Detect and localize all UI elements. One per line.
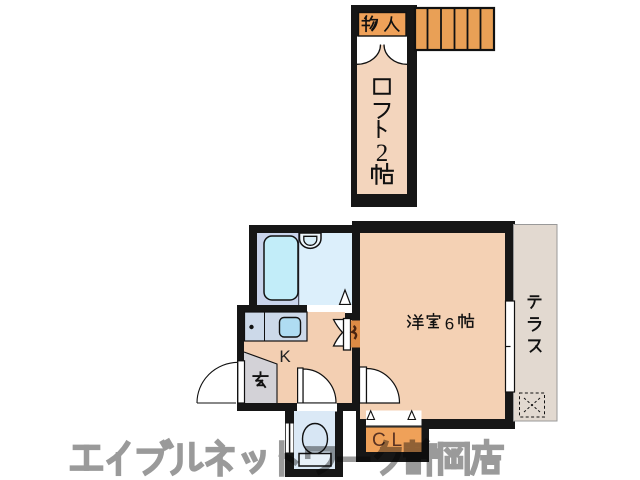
svg-text:6: 6 — [445, 315, 454, 334]
svg-text:K: K — [279, 347, 291, 366]
